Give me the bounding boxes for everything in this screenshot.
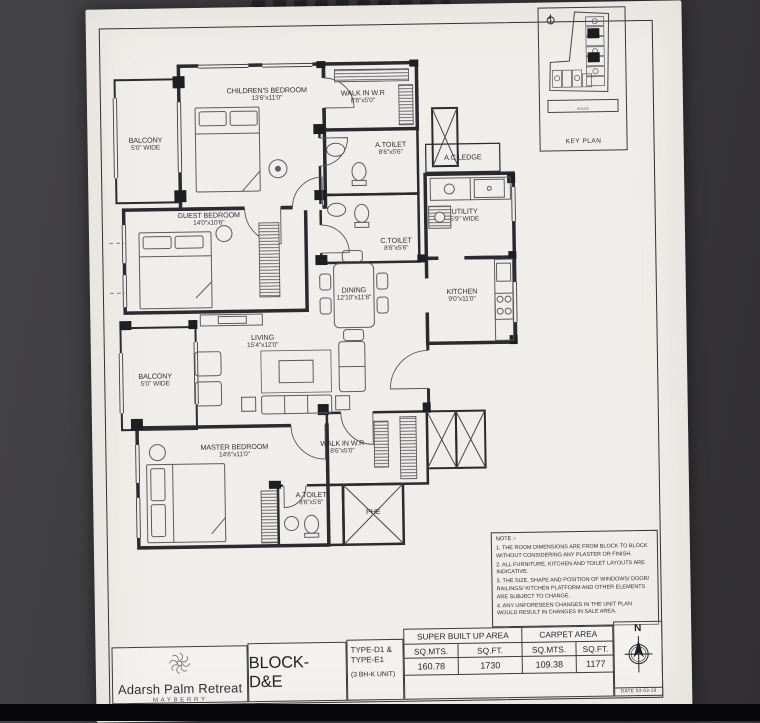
room-label-kitchen: KITCHEN9'0"x11'0": [446, 287, 477, 304]
north-icon-small: [547, 14, 554, 24]
room-label-ac-ledge: A.C LEDGE: [444, 153, 482, 162]
note-item: 1. THE ROOM DIMENSIONS ARE FROM BLOCK TO…: [496, 543, 653, 561]
area-value-carpet-sqmts: 109.38: [523, 656, 577, 674]
room-label-balcony-mid: BALCONY5'0" WIDE: [138, 372, 172, 389]
room-label-master-bedroom: MASTER BEDROOM14'6"x11'0": [200, 443, 268, 460]
unit-type-box: TYPE-D1 & TYPE-E1 (3 BH-K UNIT): [346, 639, 404, 701]
brand-logo-icon: [161, 648, 197, 679]
room-label-walkin-wr-bottom: WALK IN W.R8'6"x5'0": [320, 439, 364, 456]
key-plan-title: KEY PLAN: [541, 137, 627, 145]
highlighted-block-e: [588, 52, 600, 62]
area-value-super-sqft: 1730: [459, 657, 523, 675]
area-table-col-header: SQ.MTS.: [404, 644, 458, 659]
key-plan-box: ROAD KEY PLAN: [537, 6, 627, 151]
block-label: BLOCK- D&E: [249, 652, 347, 692]
room-label-walkin-wr-top: WALK IN W.R8'6"x5'0": [341, 89, 385, 106]
scanned-floor-plan-photo: { "plan": { "rooms": [ {"name": "CHILDRE…: [0, 0, 760, 721]
area-value-super-sqmts: 160.78: [405, 658, 459, 676]
compass-icon: [620, 634, 657, 675]
area-table: SUPER BUILT UP AREA CARPET AREA SQ.MTS. …: [403, 626, 614, 700]
room-label-c-toilet: C.TOILET8'6"x5'6": [380, 237, 412, 254]
block-box: BLOCK- D&E: [247, 642, 347, 703]
note-item: 3. THE SIZE, SHAPE AND POSITION OF WINDO…: [496, 576, 653, 602]
floor-plan: CHILDREN'S BEDROOM13'6"x11'0" WALK IN W.…: [106, 47, 526, 585]
area-table-header-carpet: CARPET AREA: [522, 626, 614, 642]
room-label-utility: UTILITY5'9" WIDE: [450, 207, 479, 224]
photo-bottom-black-bar: [0, 704, 760, 721]
room-label-balcony-top: BALCONY5'0" WIDE: [129, 136, 163, 153]
note-item: 2. ALL FURNITURE, KITCHEN AND TOILET LAY…: [496, 559, 653, 577]
room-label-dining: DINING12'10"x11'8": [337, 286, 372, 303]
compass-box: N DATE 03-03-18: [613, 621, 663, 697]
area-table-col-header: SQ.FT.: [576, 641, 614, 656]
brand-box: Adarsh Palm Retreat MAYBERRY: [111, 645, 248, 704]
room-label-a-toilet-bottom: A.TOILET8'6"x5'6": [296, 491, 327, 508]
note-item: 4. ANY UNFORESEEN CHANGES IN THE UNIT PL…: [497, 600, 654, 618]
unit-type-line3: (3 BH-K UNIT): [351, 671, 400, 679]
room-label-childrens-bedroom: CHILDREN'S BEDROOM13'6"x11'0": [227, 86, 307, 104]
key-plan-blocks: [552, 17, 605, 88]
room-label-guest-bedroom: GUEST BEDROOM14'0"x10'6": [177, 211, 240, 228]
highlighted-block-d: [587, 28, 599, 38]
area-value-carpet-sqft: 1177: [577, 655, 615, 673]
room-label-living: LIVING15'4"x12'0": [247, 334, 279, 351]
area-table-col-header: SQ.FT.: [458, 643, 522, 658]
area-table-col-header: SQ.MTS.: [522, 642, 576, 657]
paper-sheet: CHILDREN'S BEDROOM13'6"x11'0" WALK IN W.…: [85, 0, 692, 722]
notes-box: NOTE :- 1. THE ROOM DIMENSIONS ARE FROM …: [491, 530, 659, 628]
date-label: DATE 03-03-18: [615, 686, 662, 694]
room-label-a-toilet-top: A.TOILET8'6"x5'6": [375, 141, 406, 158]
room-label-phe: PHE: [366, 508, 381, 517]
brand-name: Adarsh Palm Retreat: [113, 680, 247, 697]
unit-type-line2: TYPE-E1: [351, 655, 400, 666]
